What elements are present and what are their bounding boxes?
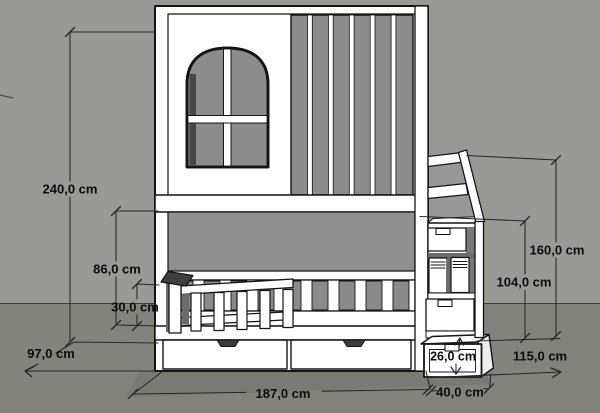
slat <box>349 15 354 195</box>
slat <box>370 15 375 195</box>
bed <box>155 6 428 371</box>
slat <box>308 15 313 195</box>
cabinet-door-right <box>451 258 469 293</box>
drawer-right-handle <box>343 340 365 347</box>
dim-step-width-label: 40,0 cm <box>436 385 484 400</box>
dim-step-height-label: 26,0 cm <box>430 350 476 364</box>
guard-shadow-strip <box>182 294 189 324</box>
guard-baluster <box>191 293 201 331</box>
dim-stairs-height-label: 104,0 cm <box>497 275 552 290</box>
loft-platform-beam <box>155 195 428 212</box>
upper-slat-panel <box>291 15 413 195</box>
guard-baluster <box>283 290 293 328</box>
drawer-left-handle <box>217 340 239 347</box>
handrail-rear-post <box>475 222 484 338</box>
cabinet-door-left <box>429 258 447 293</box>
guard-baluster <box>214 293 224 331</box>
guard-newel-post <box>169 281 181 333</box>
dim-total-height-label: 240,0 cm <box>43 182 98 197</box>
dim-stairs-depth-label: 115,0 cm <box>513 349 567 364</box>
underloft-recess <box>168 212 415 272</box>
window-mullion-vertical <box>224 48 232 167</box>
stairs-mid-drawer-handle <box>438 300 452 307</box>
dim-guard-rail-height-label: 30,0 cm <box>111 300 159 315</box>
dim-handrail-height-label: 160,0 cm <box>530 243 585 258</box>
dim-bed-length-label: 187,0 cm <box>256 386 311 401</box>
window-mullion-horizontal <box>187 116 268 124</box>
guard-baluster <box>237 292 247 330</box>
slat <box>328 15 333 195</box>
guard-baluster <box>260 291 270 329</box>
slat <box>391 15 396 195</box>
dim-underbed-clearance-label: 86,0 cm <box>93 262 141 277</box>
bunk-bed-drawing: 240,0 cm 86,0 cm 30,0 cm 97,0 cm 187,0 c… <box>0 0 600 413</box>
tower-mid-band <box>428 293 475 299</box>
stairs-top-drawer-handle <box>436 229 450 235</box>
arched-window <box>187 48 268 167</box>
dim-bed-depth-label: 97,0 cm <box>27 346 75 361</box>
technical-drawing-canvas: 240,0 cm 86,0 cm 30,0 cm 97,0 cm 187,0 c… <box>0 0 600 413</box>
